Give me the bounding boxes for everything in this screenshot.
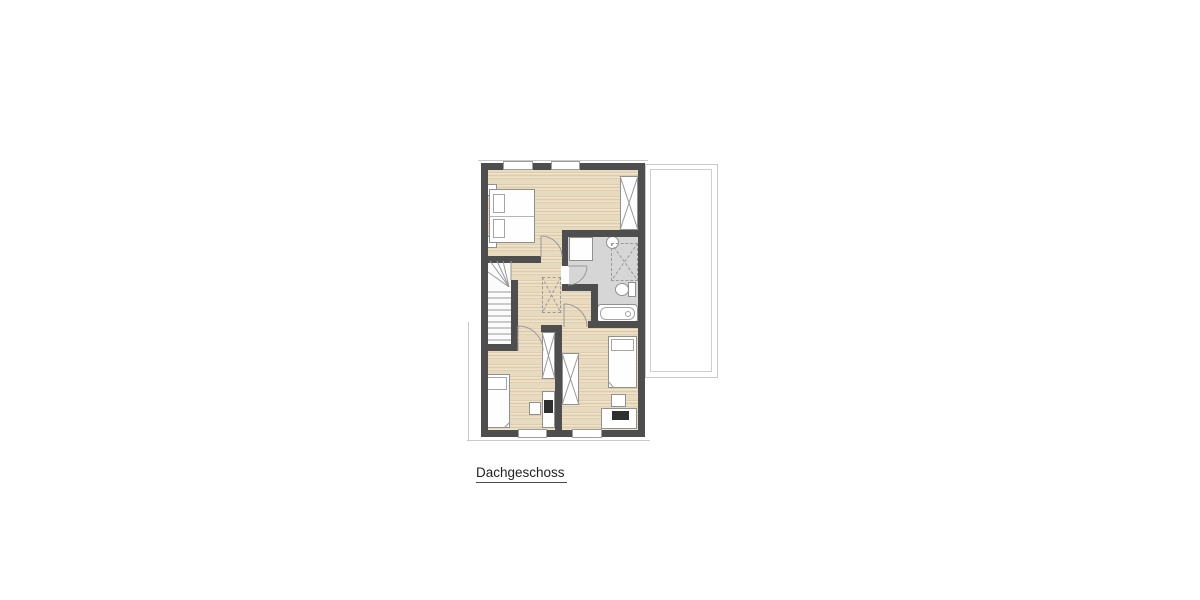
door-arc-room-right <box>564 304 587 327</box>
floor-plan-page: Dachgeschoss <box>0 0 1200 600</box>
wardrobe-x-icon <box>620 176 638 230</box>
door-arc-bathroom <box>568 266 587 285</box>
stair-treads <box>488 292 511 340</box>
floor-label: Dachgeschoss <box>476 465 567 483</box>
door-arc-bedroom <box>541 236 562 257</box>
void-x-icon <box>542 277 561 313</box>
plan-linework <box>0 0 1200 600</box>
door-arc-room-left <box>518 326 543 351</box>
wardrobe-x-icon <box>542 332 555 379</box>
stair-winder <box>488 261 511 287</box>
bed-fold-line <box>504 381 614 428</box>
shower-x-icon <box>611 243 638 281</box>
wardrobe-x-icon <box>562 353 579 405</box>
